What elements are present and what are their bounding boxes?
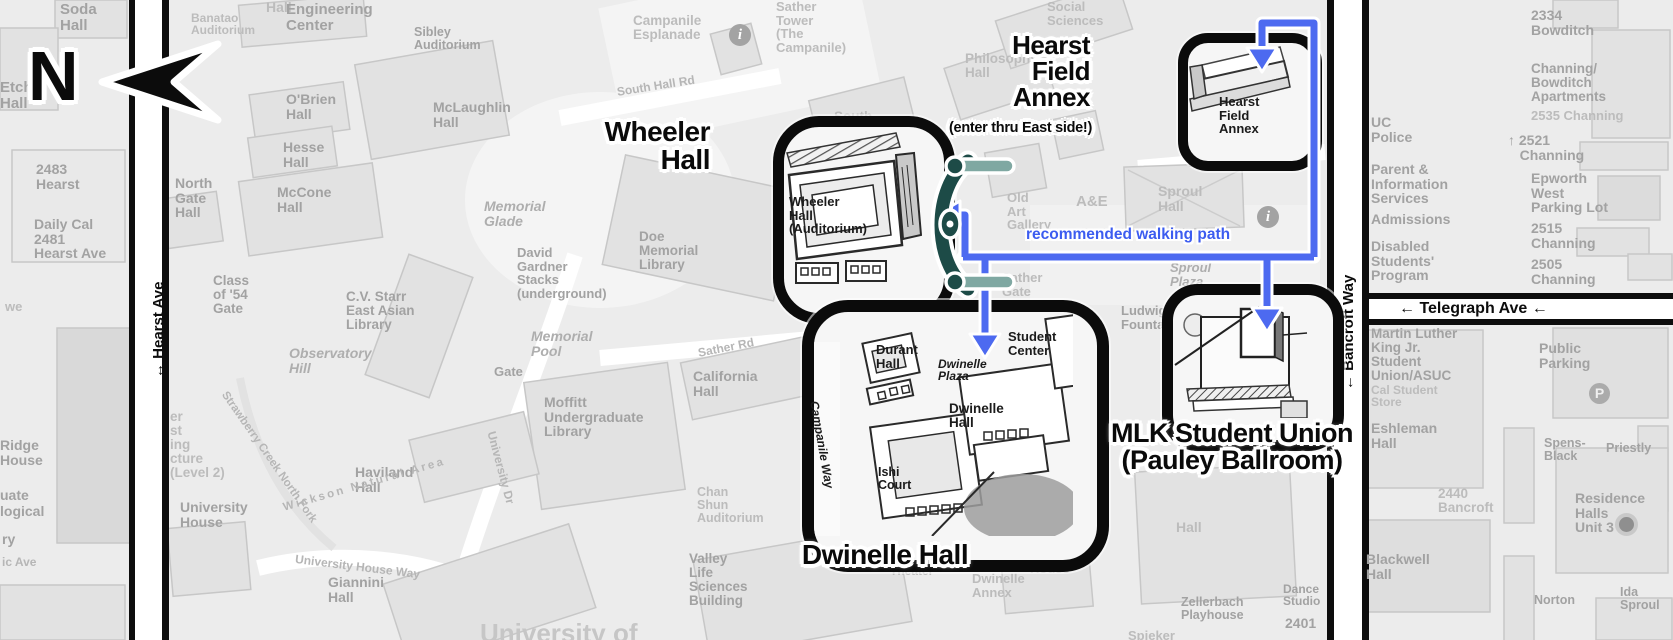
dwinelle-building-sketch <box>814 312 1073 536</box>
info-icon: i <box>729 24 751 46</box>
mlk-student-union-title: MLK Student Union (Pauley Ballroom) <box>1082 420 1382 474</box>
annex-building-sketch <box>1188 43 1292 141</box>
campus-map: HallSoda HallEtch HallBanatao Auditorium… <box>0 0 1673 640</box>
north-label: N <box>28 36 79 116</box>
wheeler-building-sketch <box>784 127 922 291</box>
residence-hall-dot-icon <box>1615 513 1638 536</box>
hearst-field-annex-subtitle: (enter thru East side!) <box>912 121 1092 136</box>
hearst-field-annex-title: Hearst Field Annex <box>950 32 1090 110</box>
walking-path-label: recommended walking path <box>1026 227 1230 243</box>
wheeler-hall-title: Wheeler Hall <box>560 118 710 174</box>
sather-gate-icon <box>920 146 1022 304</box>
callout-dwinelle-hall <box>802 300 1109 572</box>
street-border <box>1362 0 1369 640</box>
telegraph-ave-street <box>1369 299 1673 319</box>
street-border <box>1369 293 1673 299</box>
street-border <box>1369 319 1673 325</box>
mlk-building-sketch <box>1173 295 1311 418</box>
parking-icon: P <box>1589 383 1610 404</box>
info-icon: i <box>1257 206 1279 228</box>
dwinelle-hall-title: Dwinelle Hall <box>760 541 1010 569</box>
callout-hearst-field-annex <box>1178 33 1322 171</box>
north-arrow-icon <box>96 38 226 133</box>
